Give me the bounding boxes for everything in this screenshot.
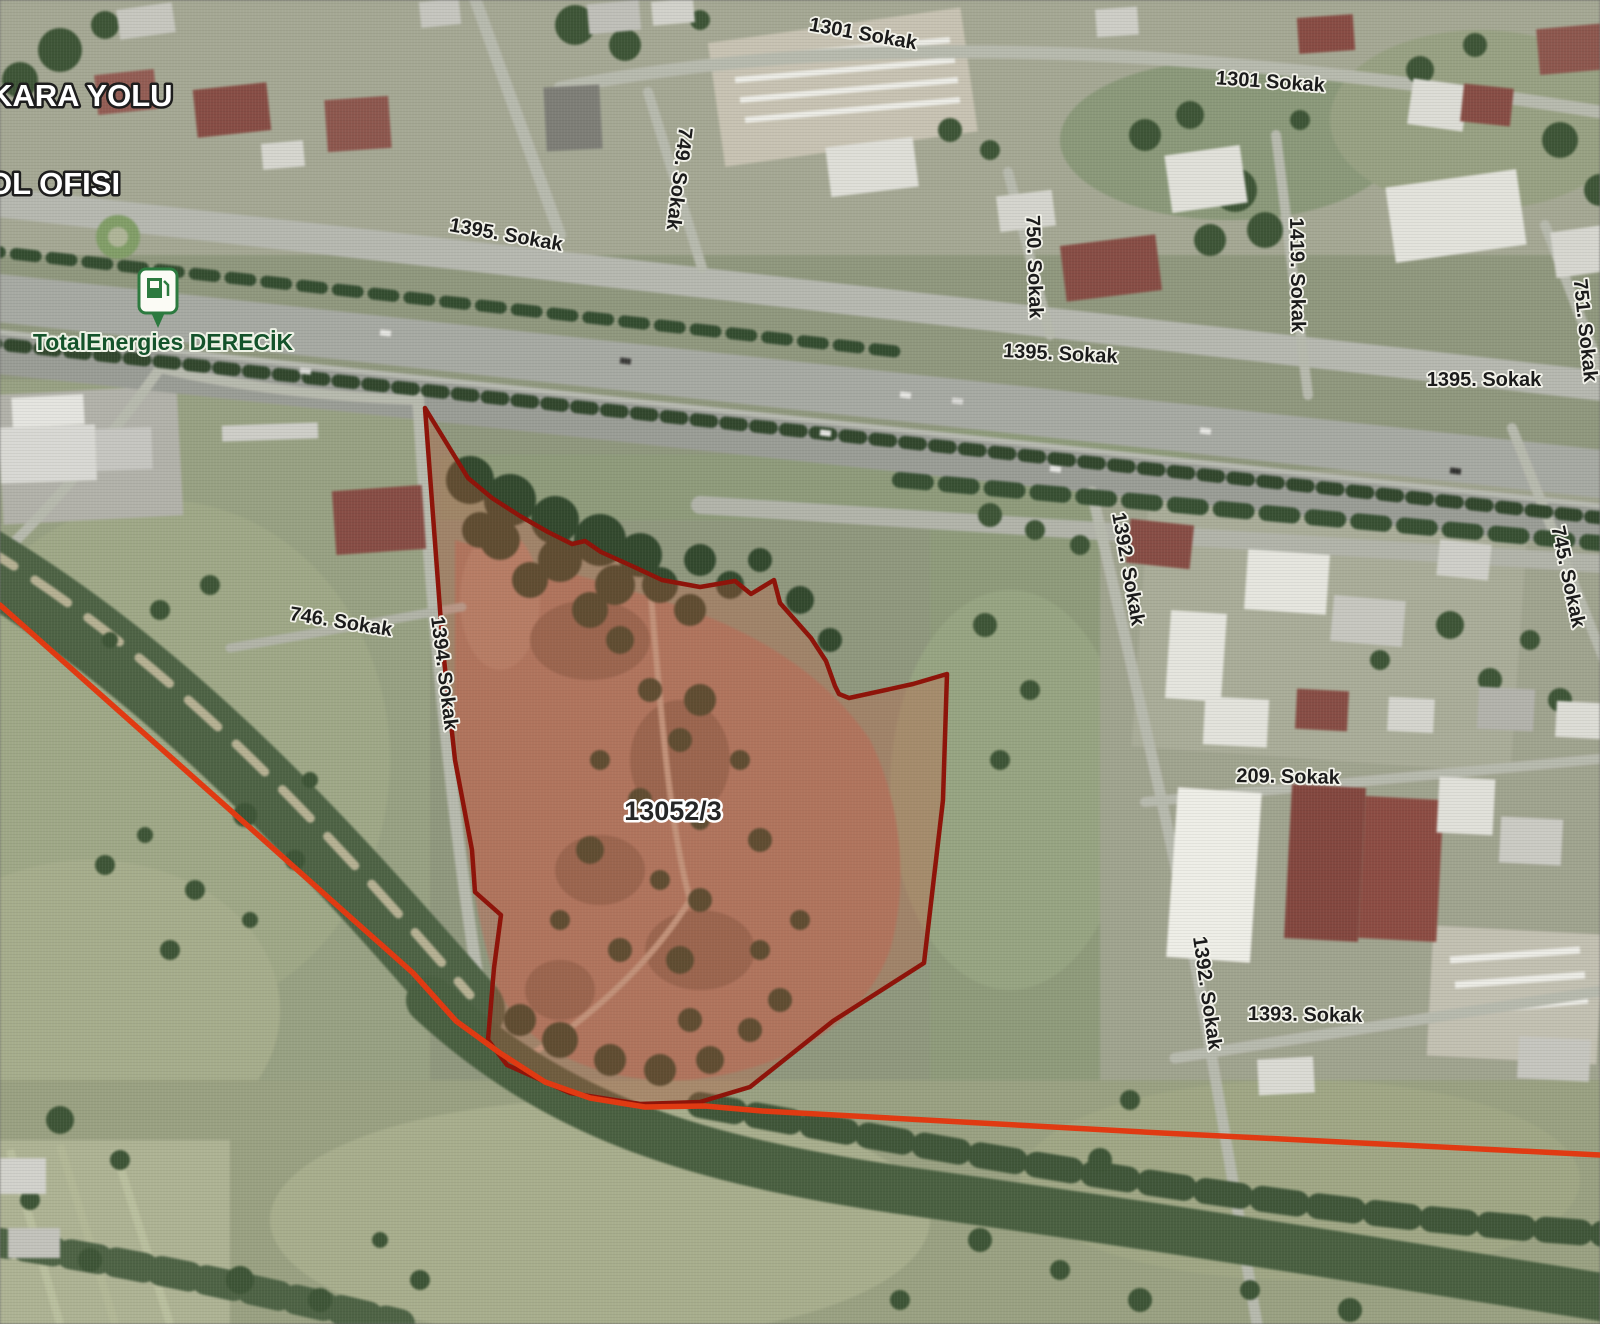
street-label: 750. Sokak <box>1021 215 1047 320</box>
poi-label: TotalEnergies DERECİK <box>33 329 294 355</box>
parcel-number-label: 13052/3 <box>624 796 722 826</box>
street-label: 1392. Sokak <box>1107 511 1149 628</box>
map-label-corner-line1: KARA YOLU <box>0 78 173 113</box>
street-label: 209. Sokak <box>1236 765 1341 789</box>
map-label-corner-line2: OL OFISI <box>0 166 120 201</box>
street-label: 751. Sokak <box>1569 278 1600 384</box>
parcel-boundary-polygon[interactable] <box>425 408 947 1104</box>
satellite-map-view[interactable]: KARA YOLU OL OFISI TotalEnergies DERECİK… <box>0 0 1600 1324</box>
street-label: 1301 Sokak <box>1215 67 1326 97</box>
street-label: 1419. Sokak <box>1285 217 1309 333</box>
street-label: 1395. Sokak <box>1427 369 1542 391</box>
street-label: 1393. Sokak <box>1248 1003 1364 1027</box>
street-label: 1301 Sokak <box>807 14 919 55</box>
fuel-station-marker-icon[interactable] <box>139 269 177 328</box>
street-label: 745. Sokak <box>1546 524 1589 631</box>
street-label: 746. Sokak <box>288 603 394 641</box>
street-label: 1395. Sokak <box>1003 340 1119 368</box>
street-label: 749. Sokak <box>662 126 697 232</box>
street-label: 1392. Sokak <box>1188 935 1226 1052</box>
street-label: 1395. Sokak <box>448 214 565 256</box>
